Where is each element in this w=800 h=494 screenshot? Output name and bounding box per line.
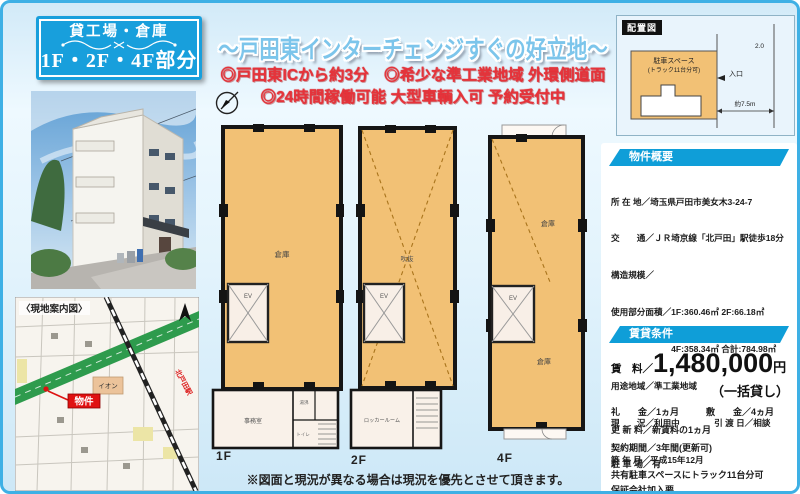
svg-text:EV: EV (509, 296, 517, 302)
location-map: イオン 北戸田駅 物件 (15, 297, 199, 491)
f1-office-label: 事務室 (244, 417, 262, 425)
floorplan-4f-label: 4F (497, 451, 513, 465)
property-marker-label: 物件 (74, 396, 94, 408)
floorplan-2f: 吹抜 EV ロッカールーム (347, 124, 465, 460)
rent-value: 1,480,000 (653, 348, 773, 379)
site-plan-title: 配置図 (622, 20, 662, 35)
f1-toilet-label: トイレ (296, 432, 310, 437)
rent-unit: 円 (773, 357, 786, 376)
f1-annex: 事務室 湯沸 トイレ (213, 390, 338, 448)
property-dot (43, 386, 48, 391)
floorplan-1f-label: 1F (216, 449, 232, 463)
terms-header: 賃貸条件 (609, 326, 789, 343)
slogan-line-2: ◎24時間稼働可能 大型車輌入可 予約受付中 (193, 85, 633, 107)
f1-elevator: EV (228, 284, 268, 342)
badge-subtitle: 1F・2F・4F部分 (41, 50, 198, 72)
rent-note: （一括貸し） (711, 381, 789, 400)
flyer-page: 貸工場・倉庫 1F・2F・4F部分 〜戸田東インターチェンジすぐの好立地〜 ◎戸… (0, 0, 800, 494)
svg-text:EV: EV (380, 294, 388, 300)
overview-line: 交 通／ＪＲ埼京線「北戸田」駅徒歩18分 (611, 232, 795, 244)
parking-label: 駐車スペース (653, 56, 694, 65)
f2-annex: ロッカールーム (351, 390, 441, 448)
details-panel: 物件概要 所 在 地／埼玉県戸田市美女木3-24-7 交 通／ＪＲ埼京線「北戸田… (601, 143, 797, 493)
f4-area-label: 倉庫 (541, 219, 555, 228)
f2-elevator: EV (364, 284, 404, 342)
footer-note: ※図面と現況が異なる場合は現況を優先とさせて頂きます。 (198, 471, 618, 488)
slogan-line-1: ◎戸田東ICから約3分 ◎希少な準工業地域 外環側道面 (193, 63, 633, 85)
f2-locker-label: ロッカールーム (364, 417, 400, 424)
site-plan-panel: 配置図 駐車スペース (トラック11台分可) 入口 2.0 約7.5m (616, 15, 795, 136)
property-type-badge: 貸工場・倉庫 1F・2F・4F部分 (36, 16, 202, 80)
f1-area-label: 倉庫 (275, 249, 290, 259)
floorplan-4f: 倉庫 倉庫 EV (478, 124, 588, 460)
headline: 〜戸田東インターチェンジすぐの好立地〜 (216, 30, 610, 66)
term-line-renewal: 更 新 料／新賃料の1ヵ月 (611, 423, 795, 436)
f1-sink-label: 湯沸 (300, 399, 309, 406)
f4-area-label-2: 倉庫 (537, 357, 551, 366)
floorplan-1f: 倉庫 EV 事務室 湯沸 トイレ (208, 124, 344, 460)
svg-text:EV: EV (244, 294, 252, 300)
road-width-label: 約7.5m (735, 99, 756, 108)
rent-row: 賃 料／ 1,480,000 円 (611, 348, 791, 379)
floorplan-2f-label: 2F (351, 453, 367, 467)
f2-area-label: 吹抜 (401, 254, 415, 263)
f4-elevator: EV (492, 286, 534, 342)
map-title: 〈現地案内図〉 (19, 301, 90, 315)
entrance-label: 入口 (729, 70, 743, 78)
flourish-icon (59, 40, 179, 50)
gate-dimension: 2.0 (755, 43, 764, 50)
overview-header: 物件概要 (609, 149, 789, 166)
overview-line: 所 在 地／埼玉県戸田市美女木3-24-7 (611, 196, 795, 208)
term-line-deposit: 礼 金／1ヵ月 敷 金／4ヵ月 (611, 405, 795, 418)
building-photo (31, 91, 196, 289)
badge-title: 貸工場・倉庫 (70, 25, 169, 40)
rent-label: 賃 料／ (611, 361, 653, 376)
term-line-guarantor: 保証会社加入要 (611, 483, 795, 494)
term-line-parking-note: 共有駐車スペースにトラック11台分可 (611, 468, 795, 481)
overview-line: 使用部分面積／1F:360.46㎡ 2F:66.18㎡ (611, 306, 795, 318)
compass-icon (213, 89, 243, 119)
parking-note: (トラック11台分可) (648, 66, 700, 74)
term-line-contract: 契約期間／3年間(更新可) (611, 441, 795, 454)
aeon-label: イオン (98, 382, 118, 390)
overview-line: 構造規模／ (611, 269, 795, 281)
